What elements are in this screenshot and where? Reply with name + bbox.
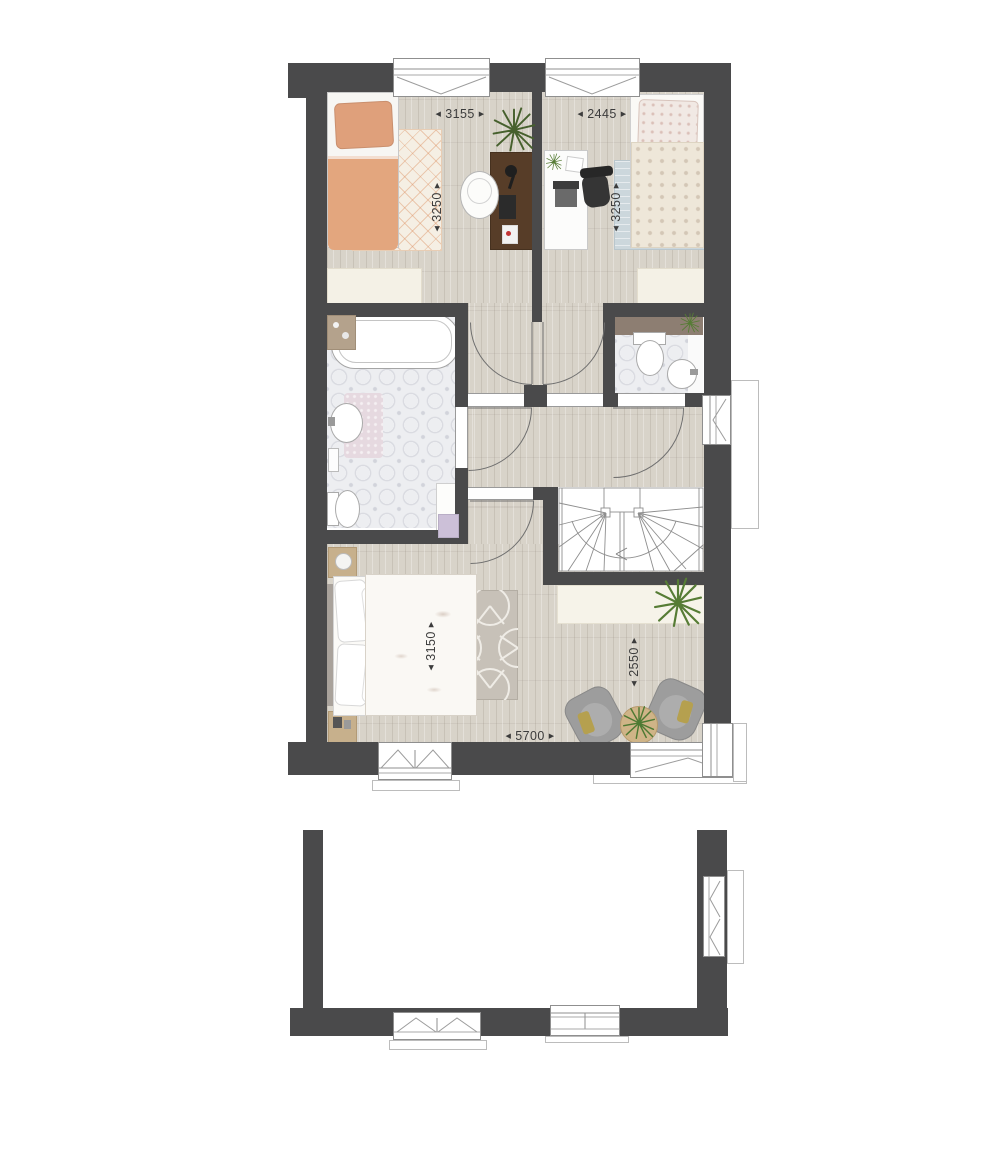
towel-radiator (328, 448, 339, 472)
dimension-bedroom1-depth: ◀ 3250 ▶ (429, 161, 445, 253)
dimension-master-width: ◀ 5700 ▶ (485, 728, 575, 744)
lower-sill-right (727, 870, 744, 964)
dim-arrow-right: ▶ (549, 733, 555, 740)
dim-value: 3155 (445, 107, 474, 121)
bath-shelf (327, 315, 356, 350)
lower-sill-left (389, 1040, 487, 1050)
table-plant-icon (621, 705, 657, 741)
bedroom2-wardrobe (637, 268, 706, 305)
master-bed (327, 574, 475, 716)
headboard (327, 584, 333, 706)
eaves-outline (731, 380, 759, 529)
wall-top (288, 63, 731, 92)
bedroom2-window (545, 58, 640, 97)
wall-master-north-stub (533, 487, 543, 500)
dim-arrow-up: ▶ (613, 183, 620, 189)
wc-plant-icon (678, 312, 702, 334)
bedroom1-door-arc (470, 322, 533, 385)
dim-value: 2445 (587, 107, 616, 121)
chair-seat (467, 178, 492, 204)
wall-left (306, 63, 327, 775)
bed-duvet (631, 142, 704, 248)
dim-arrow-down: ◀ (631, 681, 638, 687)
wall-wc-north (603, 303, 731, 317)
dimension-bedroom1-width: ◀ 3155 ▶ (415, 106, 505, 122)
dim-arrow-down: ◀ (613, 226, 620, 232)
desk-paper-mark (506, 231, 511, 236)
wall-hall-center-block (524, 385, 547, 407)
dim-value: 5700 (515, 729, 544, 743)
bedroom1-bed (327, 92, 399, 248)
wc-toilet (631, 332, 667, 380)
phone (344, 720, 351, 729)
magazine (333, 717, 342, 728)
master-window-left (378, 742, 452, 780)
dim-value: 3250 (430, 192, 444, 221)
lower-window-left (393, 1012, 481, 1040)
dim-value: 2550 (627, 647, 641, 676)
winder-staircase (558, 487, 704, 572)
bathroom-sink (328, 400, 362, 444)
bathroom-door-arc (468, 407, 532, 471)
bedroom1-door-threshold (468, 393, 524, 407)
master-door-threshold (468, 487, 533, 500)
wall-stairs-west (543, 487, 558, 585)
lower-wall-left (303, 830, 323, 1028)
dimension-sitting-depth: ◀ 2550 ▶ (626, 616, 642, 708)
dim-arrow-up: ▶ (434, 183, 441, 189)
dimension-bedroom2-width: ◀ 2445 ▶ (557, 106, 647, 122)
floor-plan-page: ◀ 3155 ▶ ◀ 2445 ▶ ◀ 3250 ▶ ◀ 3250 ▶ ◀ 31… (0, 0, 984, 1169)
wc-sink (663, 357, 697, 393)
sink-faucet (690, 369, 698, 375)
dim-value: 3150 (424, 631, 438, 660)
dim-arrow-down: ◀ (434, 226, 441, 232)
lower-window-right (703, 876, 725, 957)
lower-wall-bottom (290, 1008, 728, 1036)
master-door-arc (470, 500, 534, 564)
dim-arrow-left: ◀ (435, 111, 441, 118)
dim-arrow-up: ▶ (428, 622, 435, 628)
bath-bottle (342, 332, 349, 339)
bed-duvet (328, 156, 398, 250)
wall-left-top-stub (288, 63, 306, 98)
bathroom-toilet (327, 487, 359, 529)
master-window-corner-right (702, 723, 733, 777)
dim-value: 3250 (609, 192, 623, 221)
dim-arrow-down: ◀ (428, 665, 435, 671)
toilet-bowl (636, 340, 664, 376)
window-sill-left (372, 780, 460, 791)
wc-door-threshold (618, 393, 685, 407)
desk-plant-icon (545, 152, 563, 172)
desk-lamp-arm (508, 175, 515, 189)
bed-pillow (334, 101, 394, 150)
dim-arrow-right: ▶ (621, 111, 627, 118)
wc-door-arc (613, 407, 684, 478)
ledge-plant-icon (650, 576, 706, 630)
wall-bathroom-east-upper (455, 310, 468, 407)
bed-duvet (365, 574, 477, 716)
dimension-master-depth: ◀ 3150 ▶ (423, 600, 439, 692)
dimension-bedroom2-depth: ◀ 3250 ▶ (608, 161, 624, 253)
lower-sill-center (545, 1036, 629, 1043)
toilet-bowl (335, 490, 360, 528)
desk-pad (499, 195, 516, 219)
bedroom1-chair (460, 171, 499, 219)
dim-arrow-right: ▶ (479, 111, 485, 118)
laptop-screen (553, 181, 579, 189)
laptop-keyboard (555, 189, 577, 207)
table-lamp (335, 553, 352, 570)
dim-arrow-up: ▶ (631, 638, 638, 644)
bedroom1-window (393, 58, 490, 97)
wall-wc-south-left (603, 393, 618, 407)
sink-faucet (328, 417, 335, 426)
dim-arrow-left: ◀ (577, 111, 583, 118)
bathroom-door-threshold (455, 407, 468, 468)
bedroom2-door-arc (542, 322, 605, 385)
towel (438, 514, 459, 538)
wall-right-upper (704, 63, 731, 397)
lower-window-center (550, 1005, 620, 1036)
window-sill-corner-right (733, 723, 747, 782)
bath-bottle (333, 322, 339, 328)
bedroom1-wardrobe (327, 268, 422, 305)
bedroom2-door-threshold (547, 393, 603, 407)
wall-right-lower (704, 443, 731, 725)
hall-window (702, 395, 731, 445)
dim-arrow-left: ◀ (505, 733, 511, 740)
